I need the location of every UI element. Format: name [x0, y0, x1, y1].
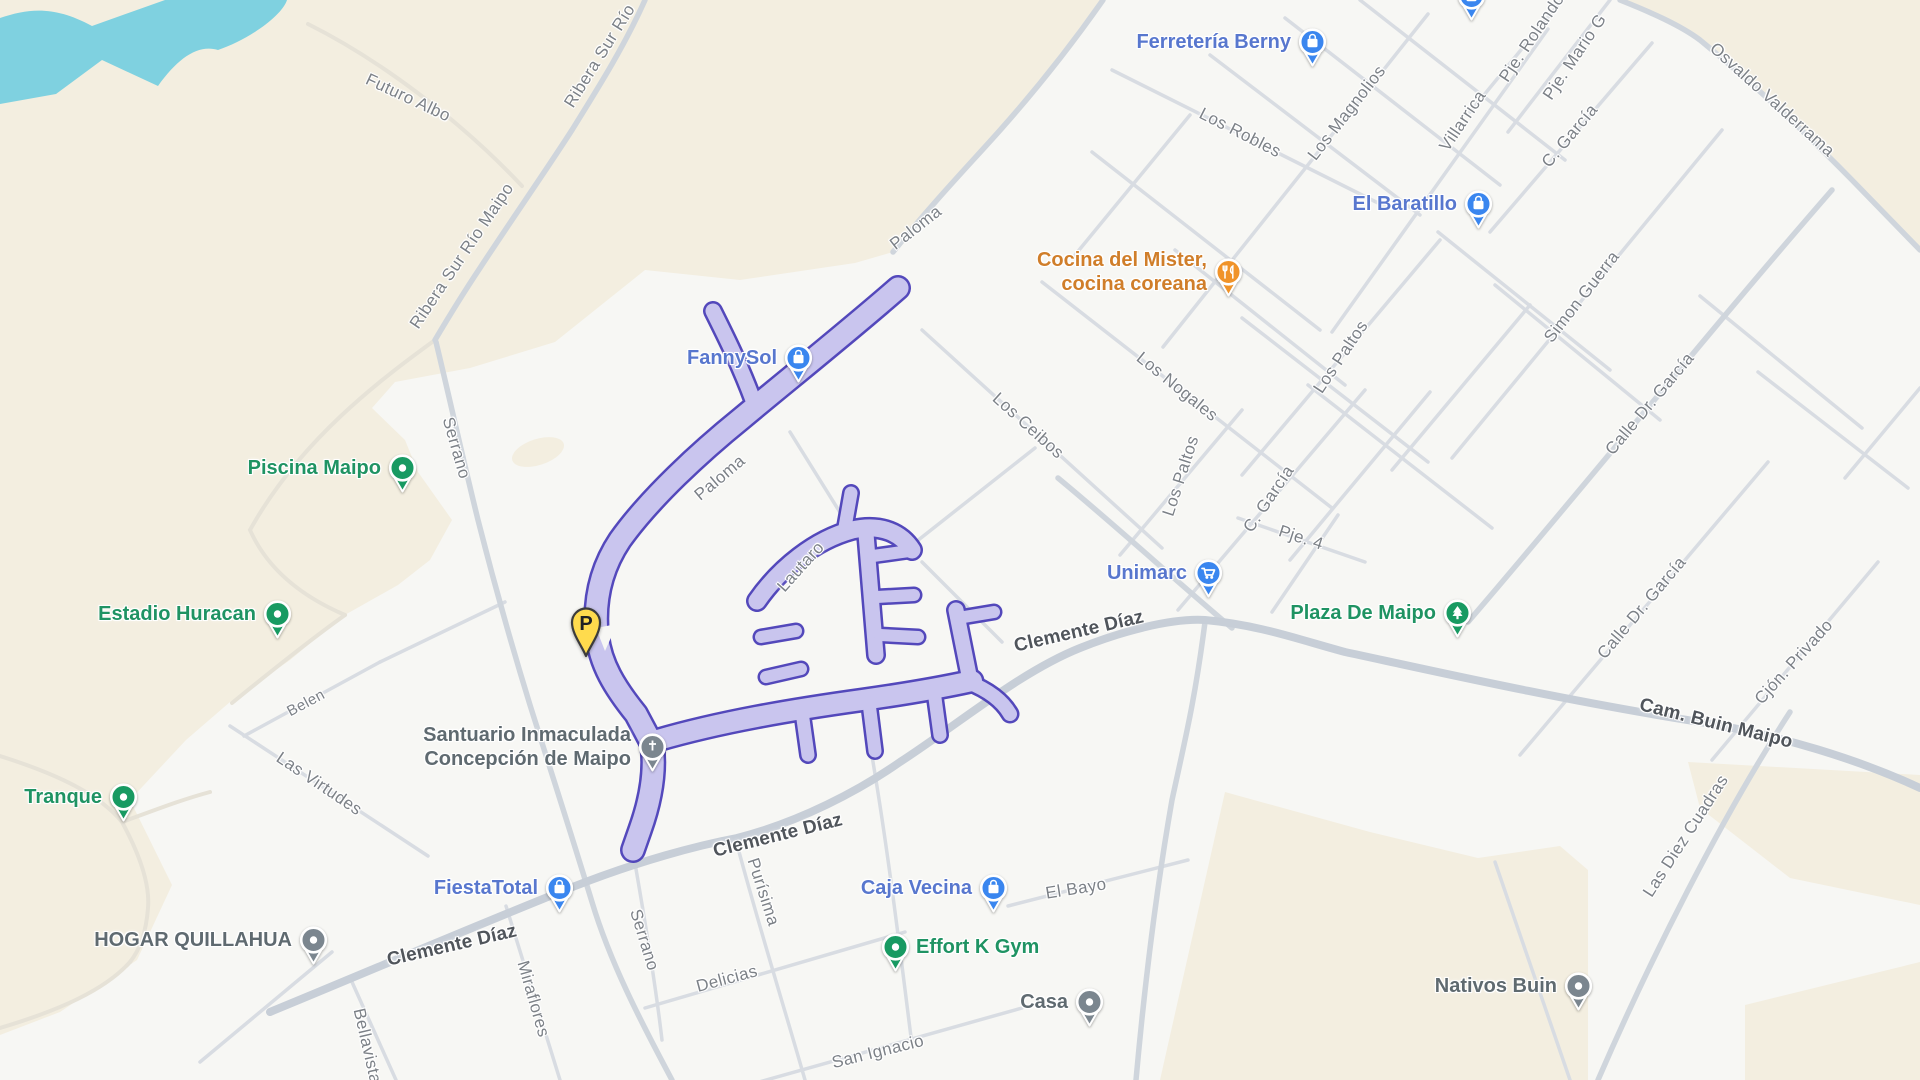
dot-pin-icon[interactable]: [1563, 971, 1594, 1011]
poi-label-ferreteria-berny: Ferretería Berny: [1136, 30, 1291, 54]
poi-label-caja-vecina: Caja Vecina: [861, 876, 972, 900]
bag-pin-icon[interactable]: [1456, 0, 1487, 21]
roads-major: [270, 620, 1920, 1012]
bag-pin-icon[interactable]: [1297, 27, 1328, 67]
dot-pin-icon[interactable]: [880, 932, 911, 972]
poi-label-effort-k-gym: Effort K Gym: [916, 935, 1039, 959]
dot-pin-icon[interactable]: [108, 782, 139, 822]
bag-pin-icon[interactable]: [1463, 189, 1494, 229]
poi-label-cocina-del-mister: Cocina del Mister,cocina coreana: [1037, 248, 1207, 296]
base-map: [0, 0, 1920, 1080]
bag-pin-icon[interactable]: [783, 343, 814, 383]
bag-pin-icon[interactable]: [978, 873, 1009, 913]
poi-label-piscina-maipo: Piscina Maipo: [248, 456, 381, 480]
food-pin-icon[interactable]: [1213, 257, 1244, 297]
parking-marker[interactable]: P: [565, 604, 607, 660]
poi-label-tranque: Tranque: [24, 785, 102, 809]
poi-label-unimarc: Unimarc: [1107, 561, 1187, 585]
tree-pin-icon[interactable]: [1442, 598, 1473, 638]
poi-label-estadio-huracan: Estadio Huracan: [98, 602, 256, 626]
poi-label-casa: Casa: [1020, 990, 1068, 1014]
poi-label-fiestatotal: FiestaTotal: [434, 876, 538, 900]
poi-label-santuario-inmaculada: Santuario InmaculadaConcepción de Maipo: [423, 723, 631, 771]
parking-letter: P: [565, 613, 607, 636]
poi-label-fannysol: FannySol: [687, 346, 777, 370]
bag-pin-icon[interactable]: [544, 873, 575, 913]
dot-pin-icon[interactable]: [387, 453, 418, 493]
land-layer: [0, 0, 1920, 1080]
cart-pin-icon[interactable]: [1193, 558, 1224, 598]
church-pin-icon[interactable]: [637, 732, 668, 772]
dot-pin-icon[interactable]: [1074, 987, 1105, 1027]
dot-pin-icon[interactable]: [262, 599, 293, 639]
poi-label-nativos-buin: Nativos Buin: [1435, 974, 1557, 998]
dot-pin-icon[interactable]: [298, 925, 329, 965]
poi-label-el-baratillo: El Baratillo: [1353, 192, 1457, 216]
poi-label-hogar-quillahua: HOGAR QUILLAHUA: [94, 928, 292, 952]
map-canvas[interactable]: Futuro AlboRibera Sur RíoRibera Sur Río …: [0, 0, 1920, 1080]
poi-label-plaza-de-maipo: Plaza De Maipo: [1290, 601, 1436, 625]
